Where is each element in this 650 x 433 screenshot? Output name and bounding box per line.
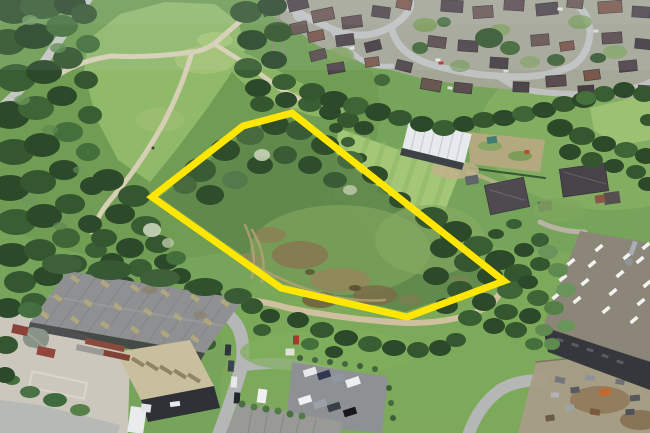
car	[228, 360, 235, 371]
house	[454, 82, 473, 94]
aerial-photo	[0, 0, 650, 433]
house	[546, 75, 567, 87]
blossom-tree	[254, 149, 270, 161]
house	[583, 69, 600, 81]
atmosphere	[0, 0, 650, 70]
walker	[152, 147, 155, 150]
blossom-tree	[343, 185, 357, 195]
car	[231, 376, 238, 387]
house-roof	[559, 163, 608, 197]
aerial-screenshot	[0, 0, 650, 433]
house	[513, 82, 529, 93]
shed	[487, 136, 498, 144]
car-red	[293, 336, 299, 345]
brick-gable	[594, 194, 605, 203]
car	[225, 344, 232, 355]
blossom-tree	[143, 223, 161, 237]
